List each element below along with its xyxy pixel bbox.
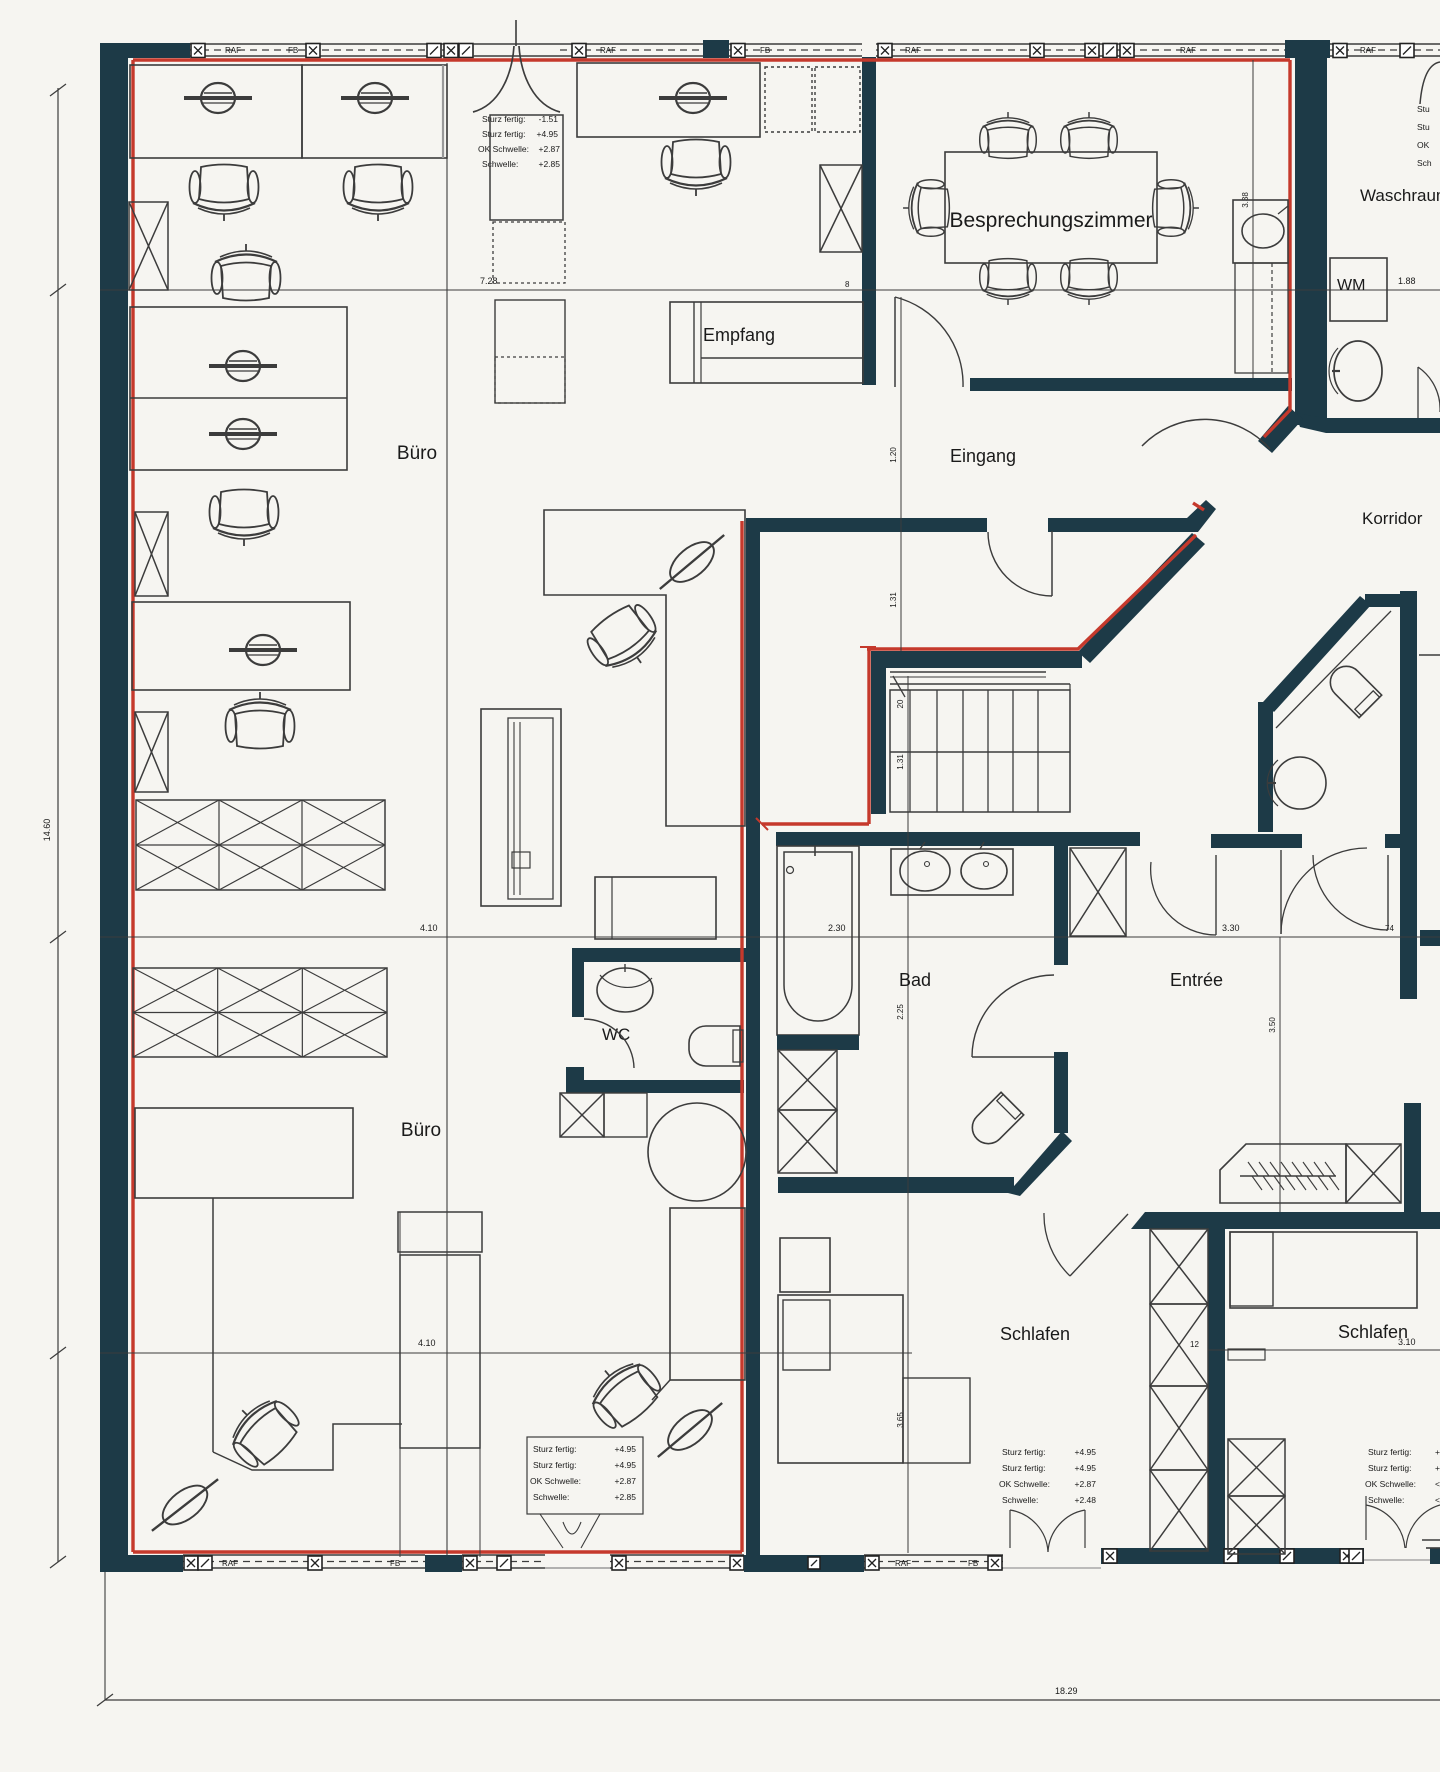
- svg-text:+: +: [1435, 1447, 1440, 1457]
- svg-text:20: 20: [896, 699, 905, 708]
- svg-text:Sch: Sch: [1417, 158, 1432, 168]
- svg-text:+4.95: +4.95: [1074, 1463, 1096, 1473]
- svg-text:8: 8: [845, 280, 850, 289]
- svg-text:+2.85: +2.85: [614, 1492, 636, 1502]
- svg-text:Schlafen: Schlafen: [1338, 1322, 1408, 1342]
- svg-text:+2.87: +2.87: [1074, 1479, 1096, 1489]
- svg-text:+2.85: +2.85: [538, 159, 560, 169]
- svg-text:Entrée: Entrée: [1170, 970, 1223, 990]
- svg-text:12: 12: [1190, 1340, 1199, 1349]
- svg-text:RAF: RAF: [222, 1559, 238, 1568]
- svg-text:Stu: Stu: [1417, 122, 1430, 132]
- svg-text:<: <: [1435, 1495, 1440, 1505]
- svg-text:Empfang: Empfang: [703, 325, 775, 345]
- svg-text:Büro: Büro: [401, 1120, 441, 1141]
- svg-text:OK Schwelle:: OK Schwelle:: [478, 144, 529, 154]
- svg-text:RAF: RAF: [1180, 46, 1196, 55]
- svg-text:FB: FB: [390, 1559, 400, 1568]
- svg-text:+4.95: +4.95: [536, 129, 558, 139]
- svg-text:7.28: 7.28: [480, 276, 498, 286]
- svg-text:Stu: Stu: [1417, 104, 1430, 114]
- svg-text:Sturz fertig:: Sturz fertig:: [482, 129, 525, 139]
- svg-text:Eingang: Eingang: [950, 446, 1016, 466]
- svg-text:4.10: 4.10: [420, 923, 438, 933]
- svg-text:Sturz fertig:: Sturz fertig:: [533, 1460, 576, 1470]
- svg-text:1.88: 1.88: [1398, 276, 1416, 286]
- svg-text:2.25: 2.25: [896, 1004, 905, 1020]
- svg-text:1.31: 1.31: [896, 754, 905, 770]
- svg-text:OK Schwelle:: OK Schwelle:: [999, 1479, 1050, 1489]
- svg-text:Sturz fertig:: Sturz fertig:: [1368, 1463, 1411, 1473]
- svg-text:Schlafen: Schlafen: [1000, 1324, 1070, 1344]
- svg-text:RAF: RAF: [895, 1559, 911, 1568]
- svg-text:4.10: 4.10: [418, 1338, 436, 1348]
- svg-text:+2.87: +2.87: [614, 1476, 636, 1486]
- svg-text:Schwelle:: Schwelle:: [1002, 1495, 1038, 1505]
- svg-text:RAF: RAF: [225, 46, 241, 55]
- svg-text:Sturz fertig:: Sturz fertig:: [1368, 1447, 1411, 1457]
- svg-text:+4.95: +4.95: [614, 1460, 636, 1470]
- svg-text:74: 74: [1385, 924, 1394, 933]
- svg-text:FB: FB: [288, 46, 298, 55]
- svg-text:14.60: 14.60: [42, 819, 52, 842]
- svg-text:Waschraum: Waschraum: [1360, 186, 1440, 205]
- svg-text:OK Schwelle:: OK Schwelle:: [1365, 1479, 1416, 1489]
- svg-text:18.29: 18.29: [1055, 1686, 1078, 1696]
- svg-text:2.30: 2.30: [828, 923, 846, 933]
- svg-text:Sturz fertig:: Sturz fertig:: [1002, 1463, 1045, 1473]
- svg-text:Schwelle:: Schwelle:: [533, 1492, 569, 1502]
- svg-text:1.31: 1.31: [889, 592, 898, 608]
- svg-text:OK: OK: [1417, 140, 1430, 150]
- svg-text:WM: WM: [1337, 277, 1365, 294]
- svg-text:RAF: RAF: [1360, 46, 1376, 55]
- svg-text:RAF: RAF: [600, 46, 616, 55]
- svg-text:Sturz fertig:: Sturz fertig:: [1002, 1447, 1045, 1457]
- svg-text:Schwelle:: Schwelle:: [482, 159, 518, 169]
- svg-text:RAF: RAF: [905, 46, 921, 55]
- svg-text:+4.95: +4.95: [614, 1444, 636, 1454]
- svg-text:FB: FB: [760, 46, 770, 55]
- svg-text:+2.48: +2.48: [1074, 1495, 1096, 1505]
- svg-text:3.30: 3.30: [1222, 923, 1240, 933]
- svg-text:Schwelle:: Schwelle:: [1368, 1495, 1404, 1505]
- svg-text:<: <: [1435, 1479, 1440, 1489]
- svg-text:Sturz fertig:: Sturz fertig:: [533, 1444, 576, 1454]
- svg-text:3.50: 3.50: [1268, 1017, 1277, 1033]
- svg-text:Büro: Büro: [397, 443, 437, 464]
- svg-text:Korridor: Korridor: [1362, 509, 1423, 528]
- svg-text:Besprechungszimmer: Besprechungszimmer: [949, 209, 1152, 232]
- svg-text:+: +: [1435, 1463, 1440, 1473]
- svg-text:+4.95: +4.95: [1074, 1447, 1096, 1457]
- svg-text:Bad: Bad: [899, 970, 931, 990]
- svg-text:FB: FB: [968, 1559, 978, 1568]
- svg-text:1.20: 1.20: [889, 447, 898, 463]
- svg-text:OK Schwelle:: OK Schwelle:: [530, 1476, 581, 1486]
- svg-text:+2.87: +2.87: [538, 144, 560, 154]
